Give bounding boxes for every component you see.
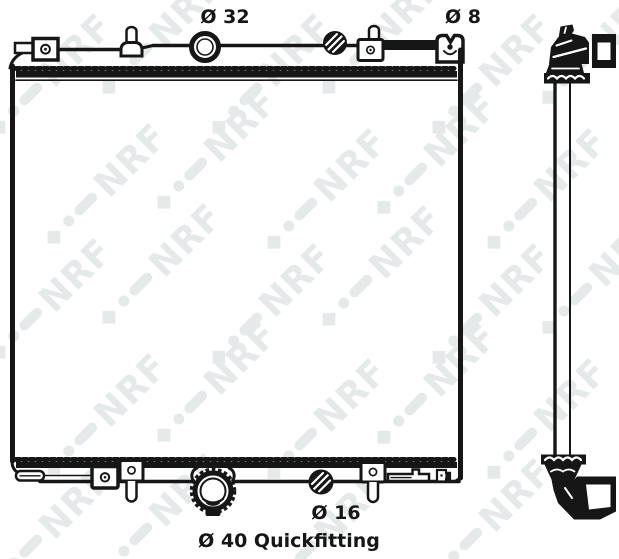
bl-bracket-plate bbox=[120, 461, 143, 482]
bottom-left-bracket bbox=[120, 461, 143, 502]
diagram-canvas: NRF bbox=[0, 0, 619, 559]
label-diameter-16: Ø 16 bbox=[311, 502, 360, 524]
core-top-serration bbox=[16, 69, 457, 81]
br-bracket-pin bbox=[368, 482, 378, 502]
watermark-tile bbox=[253, 121, 395, 263]
top-bracket-dot bbox=[369, 49, 371, 51]
port-diameter-32 bbox=[192, 34, 219, 61]
bottom-low-fitting bbox=[388, 470, 429, 482]
port-40-tab bbox=[206, 508, 221, 516]
radiator-technical-drawing: NRF bbox=[0, 0, 619, 559]
clamp-hole bbox=[447, 44, 452, 49]
top-bracket bbox=[358, 26, 383, 61]
top-mount-pin bbox=[127, 27, 137, 42]
top-mount-base bbox=[121, 43, 142, 57]
label-diameter-32: Ø 32 bbox=[200, 6, 249, 28]
label-diameter-8: Ø 8 bbox=[445, 6, 481, 28]
watermark-tile bbox=[0, 231, 121, 373]
bl-bracket-pin bbox=[127, 481, 137, 502]
bottom-tiny-bracket bbox=[437, 470, 450, 482]
br-bracket-plate bbox=[361, 463, 385, 483]
left-square-fitting-dot bbox=[44, 48, 47, 51]
bottom-drain-fitting bbox=[92, 467, 118, 489]
port-top-hatched bbox=[324, 32, 346, 54]
side-bottom-window bbox=[586, 485, 611, 510]
core-bottom-serration bbox=[16, 460, 457, 469]
side-top-connector-window bbox=[598, 43, 611, 61]
label-diameter-40-quickfitting: Ø 40 Quickfitting bbox=[198, 530, 380, 552]
bottom-tiny-bracket-dot bbox=[440, 474, 442, 476]
serration-band-bottom bbox=[16, 462, 457, 468]
port-diameter-16 bbox=[310, 471, 333, 494]
left-nub-fitting bbox=[15, 43, 33, 53]
serration-band-top bbox=[16, 71, 457, 78]
watermark-tile bbox=[33, 116, 175, 258]
port-32-ring bbox=[192, 34, 219, 61]
drain-dot bbox=[104, 476, 107, 479]
watermark-tile bbox=[473, 121, 615, 263]
top-bracket-pin bbox=[369, 26, 379, 39]
